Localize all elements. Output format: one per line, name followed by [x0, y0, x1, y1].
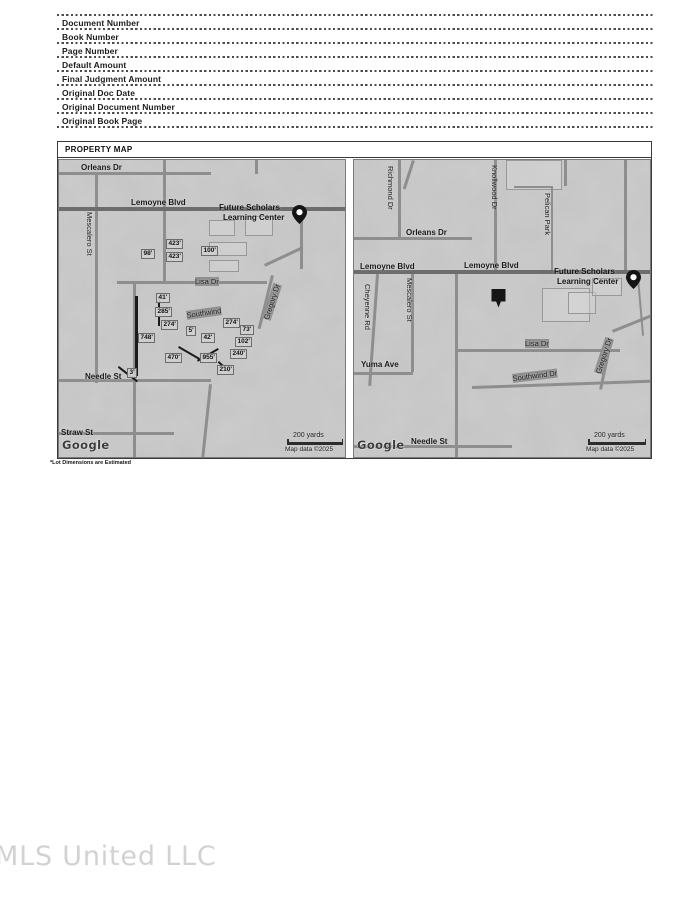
road-label: Lemoyne Blvd	[360, 262, 415, 271]
lot-dimension-label: 98'	[141, 249, 155, 259]
road-label: Mescalero St	[405, 278, 414, 322]
road-line	[564, 160, 567, 186]
road-line	[300, 217, 303, 269]
road-line	[354, 372, 413, 375]
road-label: Straw St	[61, 428, 93, 437]
form-field-row: Default Amount	[57, 58, 655, 72]
google-logo: Google	[62, 438, 110, 452]
road-label: Orleans Dr	[406, 228, 447, 237]
lot-dimension-label: 41'	[156, 293, 170, 303]
lot-dimension-label: 285'	[155, 307, 172, 317]
lot-dimension-label: 100'	[201, 246, 218, 256]
road-line	[59, 172, 211, 175]
road-line	[455, 274, 458, 458]
road-label: Mescalero St	[85, 212, 94, 256]
road-label: Cheyenne Rd	[363, 284, 372, 330]
lot-dimension-label: 748'	[138, 333, 155, 343]
lot-dimension-label: 274'	[223, 318, 240, 328]
form-field-row: Original Book Page	[57, 114, 655, 128]
poi-label: Future Scholars	[219, 203, 280, 212]
property-map-section: PROPERTY MAP Orleans DrLemoyne BlvdMesca…	[57, 141, 652, 459]
scale-label: 200 yards	[293, 432, 324, 439]
form-field-label: Document Number	[62, 18, 140, 28]
scanned-document-page: Document NumberBook NumberPage NumberDef…	[0, 0, 693, 900]
road-label: Lemoyne Blvd	[131, 198, 186, 207]
poi-label: Learning Center	[557, 277, 618, 286]
form-field-label: Original Book Page	[62, 116, 142, 126]
form-field-label: Default Amount	[62, 60, 126, 70]
map-gap	[346, 159, 353, 458]
lot-dimension-label: 42'	[201, 333, 215, 343]
mls-watermark: MLS United LLC	[0, 841, 217, 872]
form-field-row: Page Number	[57, 44, 655, 58]
location-pin-icon	[292, 205, 307, 224]
maps-row: Orleans DrLemoyne BlvdMescalero StFuture…	[58, 159, 651, 458]
road-label: Orleans Dr	[81, 163, 122, 172]
map-left: Orleans DrLemoyne BlvdMescalero StFuture…	[58, 159, 346, 458]
form-field-label: Original Doc Date	[62, 88, 135, 98]
form-field-label: Book Number	[62, 32, 119, 42]
road-line	[255, 160, 258, 174]
road-line	[455, 349, 620, 352]
map-attribution: Map data ©2025	[285, 446, 333, 453]
map-attribution: Map data ©2025	[586, 446, 634, 453]
road-line	[514, 186, 553, 188]
form-field-line	[57, 126, 655, 128]
road-line	[624, 160, 627, 270]
form-field-row: Document Number	[57, 16, 655, 30]
scale-label: 200 yards	[594, 432, 625, 439]
form-field-row: Original Doc Date	[57, 86, 655, 100]
form-field-row: Original Document Number	[57, 100, 655, 114]
road-line	[354, 237, 472, 240]
building-outline	[209, 260, 239, 272]
lot-dimension-label: 210'	[217, 365, 234, 375]
lot-dimension-label: 3'	[127, 368, 137, 378]
poi-label: Future Scholars	[554, 267, 615, 276]
road-line	[117, 281, 267, 284]
lot-dimension-label: 955'	[200, 353, 217, 363]
road-label: Needle St	[411, 437, 447, 446]
google-logo: Google	[357, 438, 405, 452]
road-label: Yuma Ave	[361, 360, 399, 369]
lot-dimension-label: 423'	[166, 252, 183, 262]
road-label: Knollwood Dr	[490, 165, 499, 210]
lot-dimension-label: 240'	[230, 349, 247, 359]
road-line	[398, 160, 401, 239]
scale-bar	[287, 442, 343, 445]
form-field-row: Book Number	[57, 30, 655, 44]
road-line	[95, 173, 98, 383]
form-fields: Document NumberBook NumberPage NumberDef…	[57, 14, 655, 128]
road-label: Needle St	[85, 372, 121, 381]
form-field-label: Page Number	[62, 46, 118, 56]
lot-dimension-label: 73'	[240, 325, 254, 335]
lot-dimension-label: 470'	[165, 353, 182, 363]
poi-label: Learning Center	[223, 213, 284, 222]
property-map-title: PROPERTY MAP	[65, 145, 132, 154]
road-label: Pelican Park	[543, 193, 552, 235]
form-field-row: Final Judgment Amount	[57, 72, 655, 86]
map-right: Richmond DrKnollwood DrPelican ParkOrlea…	[353, 159, 651, 458]
property-marker-icon	[490, 288, 507, 308]
lot-dimension-label: 423'	[166, 239, 183, 249]
lot-dimension-label: 274'	[161, 320, 178, 330]
form-field-label: Final Judgment Amount	[62, 74, 161, 84]
road-label: Lemoyne Blvd	[464, 261, 519, 270]
form-field-label: Original Document Number	[62, 102, 175, 112]
road-label: Lisa Dr	[195, 277, 219, 286]
building-outline	[209, 220, 235, 236]
lot-boundary-line	[158, 316, 160, 326]
property-map-header: PROPERTY MAP	[58, 142, 651, 158]
lot-dimension-label: 5'	[186, 326, 196, 336]
location-pin-icon	[626, 270, 641, 289]
scale-bar	[588, 442, 646, 445]
road-label: Lisa Dr	[525, 339, 549, 348]
lot-dimension-label: 102'	[235, 337, 252, 347]
lot-dimensions-footnote: *Lot Dimensions are Estimated	[50, 460, 131, 466]
road-label: Richmond Dr	[386, 166, 395, 210]
